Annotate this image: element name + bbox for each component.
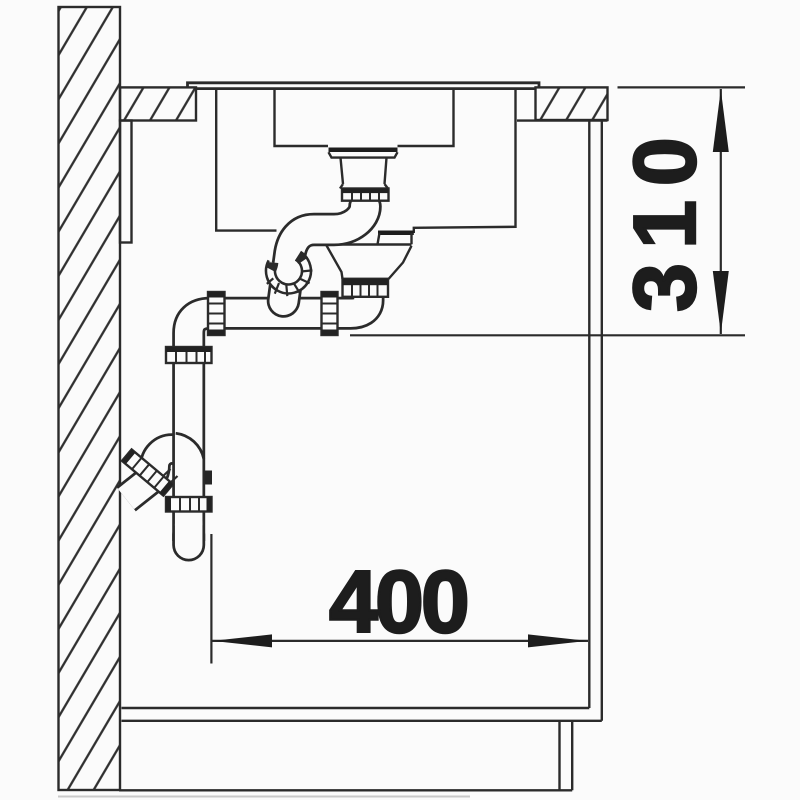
svg-text:310: 310 <box>615 123 714 312</box>
svg-text:400: 400 <box>329 552 467 651</box>
